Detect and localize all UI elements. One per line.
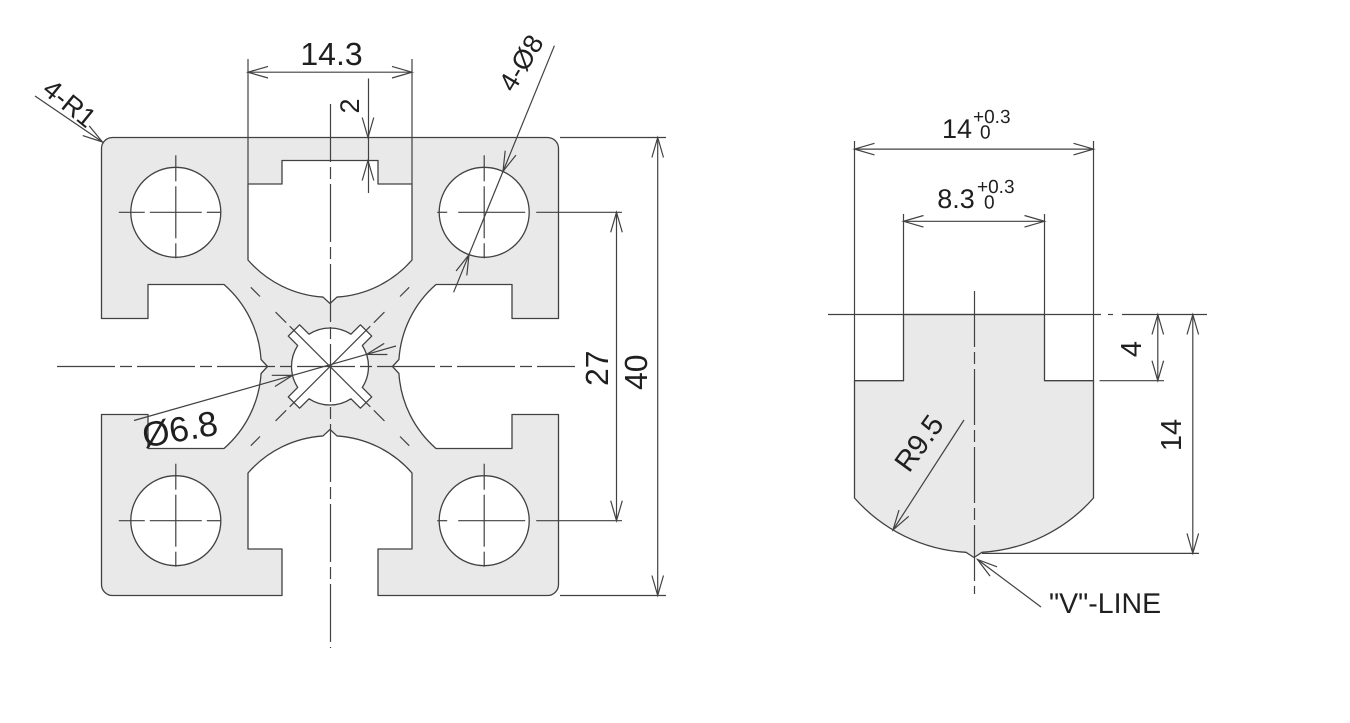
svg-text:"V"-LINE: "V"-LINE (1049, 588, 1161, 620)
svg-text:0: 0 (980, 123, 991, 144)
svg-text:2: 2 (335, 98, 365, 113)
svg-text:Ø6.8: Ø6.8 (139, 404, 221, 456)
svg-text:+0.3: +0.3 (973, 107, 1011, 128)
svg-text:4-R1: 4-R1 (37, 73, 101, 133)
svg-text:0: 0 (984, 193, 995, 214)
svg-text:8.3: 8.3 (937, 184, 975, 214)
svg-text:4-Ø8: 4-Ø8 (493, 30, 550, 97)
svg-text:14: 14 (1156, 419, 1188, 451)
svg-text:14.3: 14.3 (300, 36, 362, 72)
svg-text:+0.3: +0.3 (977, 177, 1015, 198)
svg-text:14: 14 (942, 114, 972, 144)
svg-text:27: 27 (579, 350, 615, 386)
svg-text:40: 40 (618, 354, 654, 390)
svg-text:4: 4 (1116, 341, 1148, 357)
